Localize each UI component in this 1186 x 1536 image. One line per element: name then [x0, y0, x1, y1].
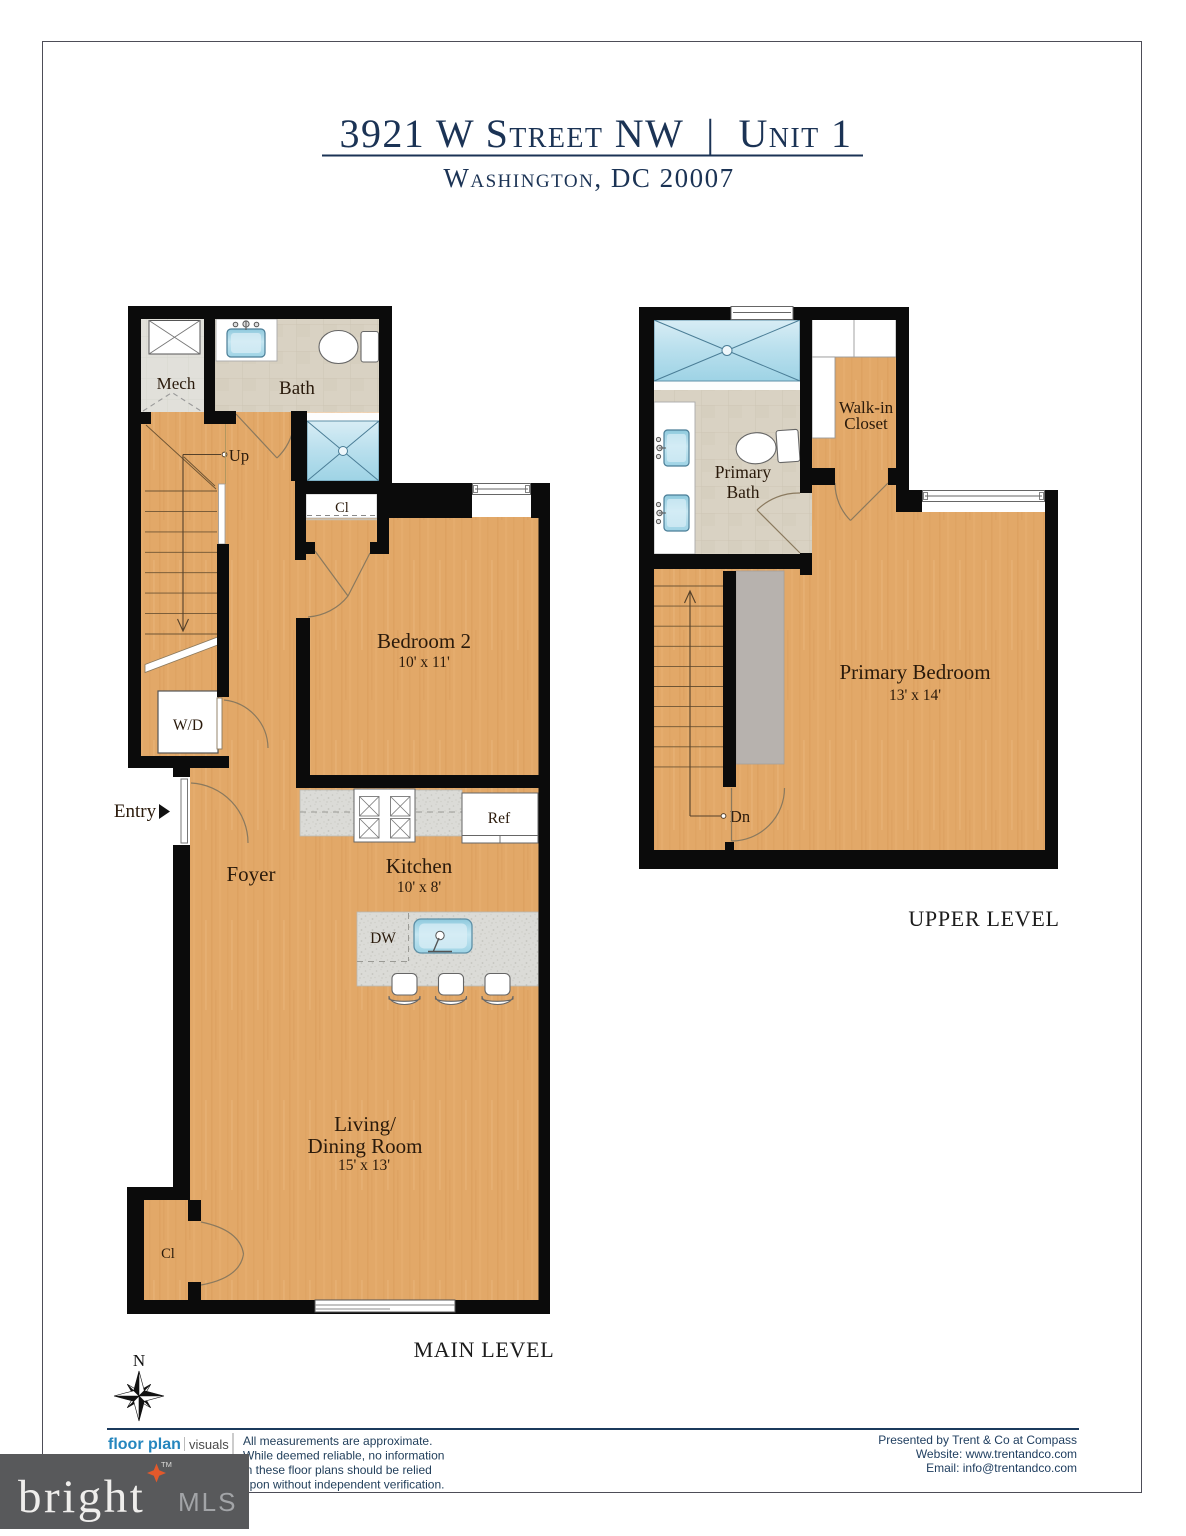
- svg-text:Presented by Trent & Co at Com: Presented by Trent & Co at Compass: [878, 1433, 1077, 1447]
- svg-text:Primary: Primary: [715, 462, 772, 482]
- svg-text:Entry: Entry: [114, 801, 157, 822]
- svg-text:UPPER LEVEL: UPPER LEVEL: [908, 906, 1059, 931]
- svg-text:DW: DW: [370, 930, 396, 947]
- svg-text:floor plan: floor plan: [108, 1436, 181, 1453]
- svg-text:Kitchen: Kitchen: [386, 854, 453, 878]
- svg-text:Up: Up: [229, 446, 249, 465]
- svg-text:MAIN LEVEL: MAIN LEVEL: [414, 1337, 555, 1362]
- svg-text:upon without independent verif: upon without independent verification.: [243, 1478, 444, 1492]
- svg-text:Mech: Mech: [157, 374, 196, 393]
- svg-text:N: N: [133, 1351, 145, 1370]
- svg-text:Email: info@trentandco.com: Email: info@trentandco.com: [926, 1461, 1077, 1475]
- svg-text:Bath: Bath: [726, 482, 759, 502]
- svg-text:Bedroom 2: Bedroom 2: [377, 629, 471, 653]
- svg-text:Bath: Bath: [279, 378, 315, 399]
- svg-text:Primary Bedroom: Primary Bedroom: [839, 660, 990, 684]
- svg-text:All measurements are approxima: All measurements are approximate.: [243, 1434, 432, 1448]
- svg-text:Cl: Cl: [161, 1246, 175, 1262]
- svg-text:3921 W Street NW | Unit 1: 3921 W Street NW | Unit 1: [340, 111, 853, 156]
- svg-text:Dining Room: Dining Room: [308, 1134, 423, 1158]
- svg-text:in these floor plans should be: in these floor plans should be relied: [243, 1463, 432, 1477]
- svg-text:While deemed reliable, no info: While deemed reliable, no information: [243, 1449, 444, 1463]
- svg-text:Cl: Cl: [335, 500, 349, 516]
- svg-text:TM: TM: [161, 1460, 172, 1469]
- svg-text:bright: bright: [18, 1471, 145, 1523]
- svg-text:Dn: Dn: [730, 807, 750, 826]
- svg-text:Washington, DC 20007: Washington, DC 20007: [443, 163, 734, 193]
- svg-text:13' x 14': 13' x 14': [889, 687, 941, 704]
- svg-text:MLS: MLS: [178, 1487, 237, 1517]
- svg-text:10' x 11': 10' x 11': [398, 654, 450, 671]
- svg-text:visuals: visuals: [189, 1437, 229, 1452]
- svg-text:Foyer: Foyer: [227, 862, 276, 886]
- svg-text:Website: www.trentandco.com: Website: www.trentandco.com: [916, 1447, 1077, 1461]
- svg-text:10' x 8': 10' x 8': [397, 879, 442, 896]
- svg-text:15' x 13': 15' x 13': [338, 1157, 390, 1174]
- svg-text:Ref: Ref: [488, 810, 511, 827]
- svg-text:Living/: Living/: [334, 1112, 396, 1136]
- svg-text:Closet: Closet: [844, 414, 888, 433]
- svg-text:W/D: W/D: [173, 717, 203, 734]
